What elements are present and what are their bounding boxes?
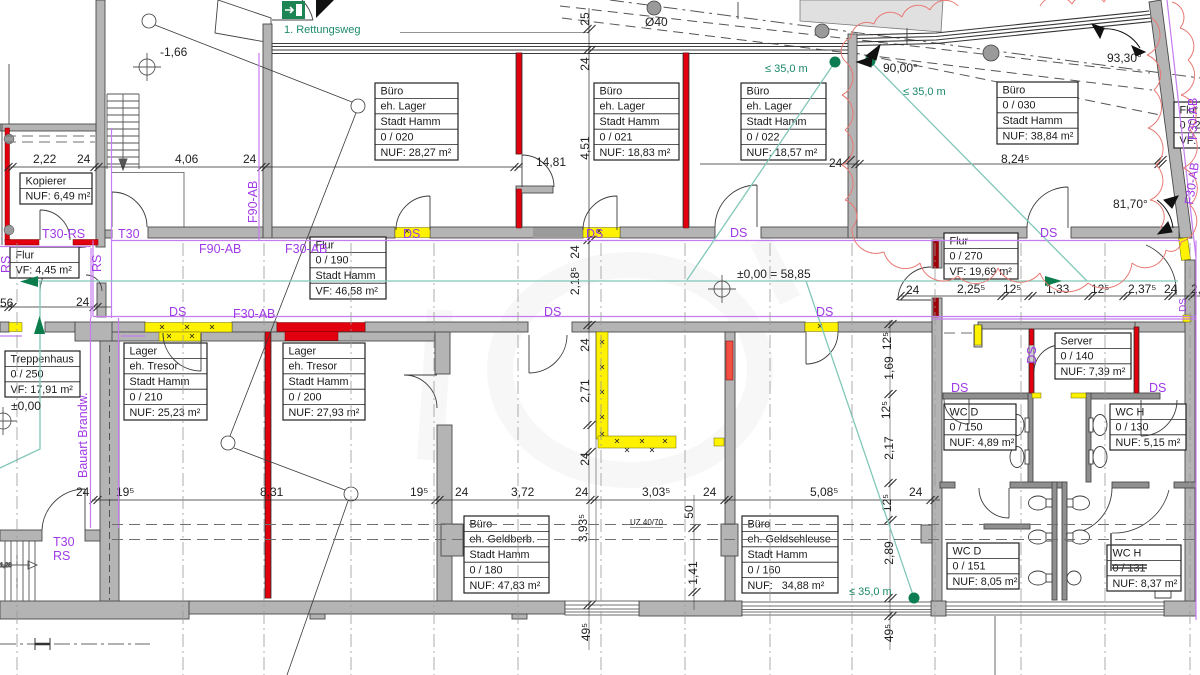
svg-text:12⁵: 12⁵ [879, 401, 893, 419]
svg-text:DS: DS [586, 227, 603, 241]
svg-text:1,69: 1,69 [882, 356, 896, 380]
svg-text:RS: RS [0, 256, 13, 273]
svg-text:≤ 35,0 m: ≤ 35,0 m [903, 86, 946, 98]
svg-text:DS: DS [730, 226, 747, 240]
svg-text:12⁵: 12⁵ [1003, 282, 1021, 296]
svg-text:12⁵: 12⁵ [880, 332, 894, 350]
svg-text:NUF: 8,05 m²: NUF: 8,05 m² [953, 576, 1018, 588]
svg-text:DS: DS [1149, 381, 1166, 395]
svg-text:NUF: 7,39 m²: NUF: 7,39 m² [1061, 366, 1126, 378]
svg-text:eh. Lager: eh. Lager [747, 101, 793, 113]
svg-text:Server: Server [1061, 335, 1093, 347]
svg-text:0 / 270: 0 / 270 [950, 251, 983, 263]
svg-text:Kopierer: Kopierer [26, 175, 67, 187]
svg-text:DS: DS [1040, 226, 1057, 240]
svg-text:±0,00 = 58,85: ±0,00 = 58,85 [737, 267, 811, 281]
svg-text:NUF: 18,57 m²: NUF: 18,57 m² [747, 147, 818, 159]
svg-text:0 / 210: 0 / 210 [130, 392, 163, 404]
svg-text:Stadt Hamm: Stadt Hamm [748, 549, 808, 561]
svg-text:2,89: 2,89 [882, 541, 896, 565]
svg-text:14,81: 14,81 [536, 155, 566, 169]
svg-text:50: 50 [682, 505, 696, 519]
svg-text:≤ 35,0 m: ≤ 35,0 m [849, 586, 892, 598]
svg-text:0 / 200: 0 / 200 [289, 392, 322, 404]
svg-text:24: 24 [455, 485, 469, 499]
svg-text:RS: RS [90, 255, 104, 272]
svg-text:0 / 022: 0 / 022 [747, 132, 780, 144]
svg-text:eh. Lager: eh. Lager [381, 101, 427, 113]
svg-text:1,28: 1,28 [0, 563, 12, 569]
svg-text:2,71: 2,71 [578, 379, 592, 403]
svg-text:Stadt Hamm: Stadt Hamm [316, 270, 376, 282]
svg-text:Stadt Hamm: Stadt Hamm [130, 376, 190, 388]
svg-text:24: 24 [578, 57, 592, 71]
svg-text:NUF: 6,49 m²: NUF: 6,49 m² [26, 191, 91, 203]
svg-text:49⁵: 49⁵ [882, 624, 896, 642]
svg-text:DS: DS [403, 227, 420, 241]
svg-text:0 / 160: 0 / 160 [748, 565, 781, 577]
svg-text:F90-AB: F90-AB [246, 181, 260, 223]
svg-text:24: 24 [76, 485, 90, 499]
svg-text:2,22: 2,22 [33, 152, 57, 166]
svg-text:DS: DS [1025, 346, 1039, 363]
svg-text:1,41: 1,41 [686, 561, 700, 585]
svg-text:-1,66: -1,66 [160, 45, 188, 59]
svg-text:3,72: 3,72 [511, 485, 535, 499]
svg-text:0 / 020: 0 / 020 [381, 132, 414, 144]
svg-text:0 / 190: 0 / 190 [316, 255, 349, 267]
svg-text:T30: T30 [118, 227, 140, 241]
svg-text:3,03⁵: 3,03⁵ [642, 485, 670, 499]
svg-text:Lager: Lager [130, 345, 158, 357]
svg-text:Bauart Brandw.: Bauart Brandw. [76, 393, 90, 478]
svg-text:eh. Tresor: eh. Tresor [289, 361, 338, 373]
svg-text:T30: T30 [53, 535, 75, 549]
svg-text:Stadt Hamm: Stadt Hamm [381, 116, 441, 128]
svg-text:12⁵: 12⁵ [1091, 282, 1109, 296]
svg-text:Stadt Hamm: Stadt Hamm [470, 549, 530, 561]
svg-text:0 / 151: 0 / 151 [953, 561, 986, 573]
svg-text:Stadt Hamm: Stadt Hamm [289, 376, 349, 388]
svg-text:Stadt Hamm: Stadt Hamm [600, 116, 660, 128]
svg-text:8,31: 8,31 [260, 485, 284, 499]
svg-text:WC H: WC H [1113, 547, 1142, 559]
svg-text:DS: DS [169, 305, 186, 319]
svg-text:Flur: Flur [16, 249, 35, 261]
svg-text:19⁵: 19⁵ [410, 485, 428, 499]
svg-text:WC D: WC D [953, 545, 982, 557]
svg-text:2,37⁵: 2,37⁵ [1128, 282, 1156, 296]
svg-text:eh. Lager: eh. Lager [600, 101, 646, 113]
svg-text:DS: DS [816, 305, 833, 319]
svg-text:VF: 17,91 m²: VF: 17,91 m² [11, 384, 74, 396]
svg-text:WC H: WC H [1116, 406, 1145, 418]
svg-text:DS: DS [1178, 298, 1189, 312]
svg-text:WC D: WC D [950, 406, 979, 418]
svg-text:24: 24 [568, 245, 582, 259]
svg-text:F90-AB: F90-AB [199, 242, 241, 256]
svg-text:UZ 40/70: UZ 40/70 [630, 518, 663, 527]
svg-text:Büro: Büro [381, 85, 404, 97]
svg-text:NUF: 47,83 m²: NUF: 47,83 m² [470, 580, 541, 592]
svg-text:DS: DS [951, 381, 968, 395]
svg-text:5,08⁵: 5,08⁵ [810, 485, 838, 499]
svg-text:0 / 140: 0 / 140 [1061, 351, 1094, 363]
svg-text:NUF: 8,37 m²: NUF: 8,37 m² [1113, 578, 1178, 590]
svg-text:±0,00: ±0,00 [11, 399, 41, 413]
svg-text:VF: 4,45 m²: VF: 4,45 m² [16, 265, 73, 277]
svg-text:24: 24 [703, 485, 717, 499]
svg-text:Ø40: Ø40 [645, 15, 668, 29]
svg-text:24: 24 [829, 156, 843, 170]
svg-text:4,06: 4,06 [175, 152, 199, 166]
svg-text:Stadt Hamm: Stadt Hamm [1003, 115, 1063, 127]
svg-text:3,93⁵: 3,93⁵ [576, 514, 590, 542]
svg-text:0 / 180: 0 / 180 [470, 565, 503, 577]
svg-text:Lager: Lager [289, 345, 317, 357]
svg-text:24: 24 [243, 152, 257, 166]
svg-text:F30-AB: F30-AB [285, 242, 327, 256]
svg-text:2,17: 2,17 [882, 436, 896, 460]
svg-text:81,70°: 81,70° [1113, 197, 1148, 211]
svg-text:0 / 130: 0 / 130 [1116, 422, 1149, 434]
svg-text:NUF: 38,84 m²: NUF: 38,84 m² [1003, 131, 1074, 143]
svg-text:90,00°: 90,00° [883, 61, 918, 75]
svg-text:NUF: 4,89 m²: NUF: 4,89 m² [950, 437, 1015, 449]
svg-text:≤ 35,0 m: ≤ 35,0 m [765, 63, 808, 75]
svg-text:NUF: 25,23 m²: NUF: 25,23 m² [130, 407, 201, 419]
svg-text:0 / 021: 0 / 021 [600, 132, 633, 144]
svg-text:DS: DS [544, 305, 561, 319]
svg-text:NUF: 34,88 m²: NUF: 34,88 m² [748, 580, 825, 592]
svg-text:T30-RS: T30-RS [42, 227, 85, 241]
svg-text:0 / 250: 0 / 250 [11, 369, 44, 381]
svg-text:1. Rettungsweg: 1. Rettungsweg [284, 24, 360, 36]
svg-text:Büro: Büro [747, 85, 770, 97]
svg-text:25: 25 [578, 12, 592, 26]
svg-text:Büro: Büro [1003, 84, 1026, 96]
svg-text:Büro: Büro [600, 85, 623, 97]
svg-text:NUF: 27,93 m²: NUF: 27,93 m² [289, 407, 360, 419]
svg-text:RS: RS [53, 549, 70, 563]
svg-text:8,24⁵: 8,24⁵ [1001, 152, 1029, 166]
svg-text:F30-AB: F30-AB [1186, 98, 1200, 140]
svg-text:Flur: Flur [950, 235, 969, 247]
svg-text:4,51: 4,51 [578, 136, 592, 160]
svg-text:NUF: 5,15 m²: NUF: 5,15 m² [1116, 437, 1181, 449]
svg-text:24: 24 [909, 485, 923, 499]
svg-text:24: 24 [578, 338, 592, 352]
svg-text:49⁵: 49⁵ [579, 623, 593, 641]
svg-text:NUF: 28,27 m²: NUF: 28,27 m² [381, 147, 452, 159]
svg-text:24: 24 [575, 485, 589, 499]
svg-text:24: 24 [906, 283, 920, 297]
svg-text:VF: 46,58 m²: VF: 46,58 m² [316, 286, 379, 298]
svg-text:NUF: 18,83 m²: NUF: 18,83 m² [600, 147, 671, 159]
svg-text:24: 24 [76, 295, 90, 309]
svg-text:F30-AB: F30-AB [233, 307, 275, 321]
svg-text:0 / 030: 0 / 030 [1003, 100, 1036, 112]
svg-text:eh. Tresor: eh. Tresor [130, 361, 179, 373]
svg-text:Treppenhaus: Treppenhaus [11, 353, 75, 365]
svg-text:2,25⁵: 2,25⁵ [957, 282, 985, 296]
svg-text:24: 24 [77, 152, 91, 166]
